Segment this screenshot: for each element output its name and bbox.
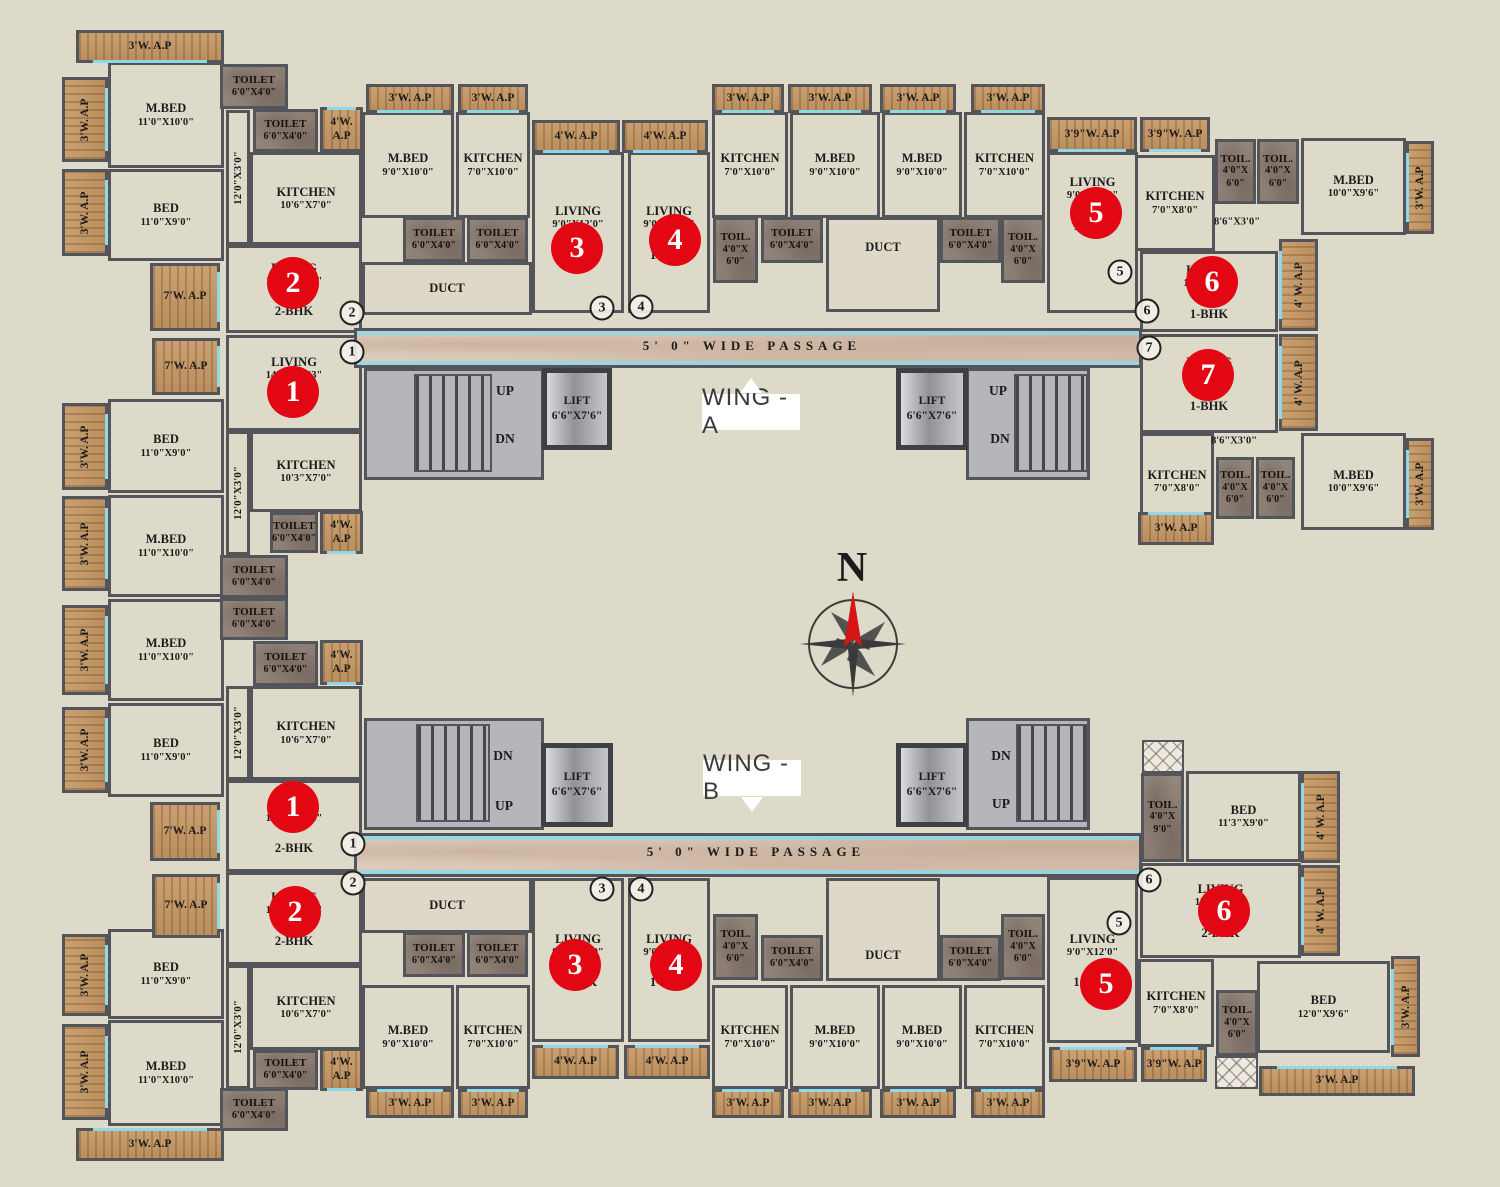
room-label: 6'6"X7'6" xyxy=(552,409,602,424)
unit-number-badge: 6 xyxy=(1198,885,1250,937)
room-mbed: M.BED9'0"X10'0" xyxy=(790,985,880,1089)
room-label: TOIL. xyxy=(1008,231,1038,244)
room-label: 4'0"X xyxy=(1265,165,1291,178)
room-label: BED xyxy=(1311,993,1337,1007)
toilet: TOILET6'0"X4'0" xyxy=(220,555,288,598)
toilet: TOILET6'0"X4'0" xyxy=(467,217,528,262)
room-label: TOILET xyxy=(273,520,315,533)
room-label: 12'0"X3'0" xyxy=(232,706,244,760)
room-kitchen: KITCHEN10'6"X7'0" xyxy=(250,686,362,780)
window-glazing xyxy=(105,180,108,245)
flat-number-circle: 6 xyxy=(1135,299,1160,324)
balcony-ap: 7'W. A.P xyxy=(152,338,220,395)
room-label: TOILET xyxy=(950,227,992,240)
window-glazing xyxy=(105,88,108,151)
room-label: 7'W. A.P xyxy=(165,360,208,374)
room-label: TOILET xyxy=(233,606,275,619)
room-kitchen: KITCHEN7'0"X10'0" xyxy=(712,112,788,218)
room-label: 3'W. A.P xyxy=(1155,522,1198,536)
room-label: 3'9"W. A.P xyxy=(1065,128,1120,142)
balcony-ap: 3'W. A.P xyxy=(458,84,528,113)
window-glazing xyxy=(1277,1066,1397,1069)
window-glazing xyxy=(1279,251,1282,320)
room-label: 3'W. A.P xyxy=(389,92,432,106)
window-glazing xyxy=(722,110,775,113)
balcony-ap: 3'W. A.P xyxy=(62,934,108,1016)
window-glazing xyxy=(1301,877,1304,945)
window-glazing xyxy=(105,508,108,579)
room-mbed: M.BED9'0"X10'0" xyxy=(362,112,454,218)
unit-number-badge: 4 xyxy=(649,214,701,266)
window-glazing xyxy=(105,718,108,782)
room-label: DUCT xyxy=(865,240,900,254)
room-label: 9'0"X10'0" xyxy=(382,166,433,179)
balcony-ap: 4'W. A.P xyxy=(532,1045,619,1079)
room-label: 3'W. A.P xyxy=(79,1051,91,1094)
wing-label: WING - B xyxy=(703,760,801,796)
room-label: 11'0"X10'0" xyxy=(138,651,194,664)
room-label: TOIL. xyxy=(720,928,750,941)
room-label: 9'0"X10'0" xyxy=(896,1038,947,1051)
room-label: LIFT xyxy=(919,770,946,785)
window-glazing xyxy=(635,1045,699,1048)
window-glazing xyxy=(1391,969,1394,1045)
room-label: A.P xyxy=(332,663,350,677)
room-label: TOILET xyxy=(413,942,455,955)
flat-number-circle: 4 xyxy=(629,877,654,902)
north-label: N xyxy=(837,544,867,592)
passage-label: 5' 0" WIDE PASSAGE xyxy=(643,338,861,354)
stair-direction-label: UP xyxy=(989,383,1007,399)
balcony-ap: 7'W. A.P xyxy=(150,802,220,861)
dimension-label: 8'6"X3'0" xyxy=(1211,436,1257,447)
balcony-ap: 3'W. A.P xyxy=(458,1089,528,1118)
room-label: M.BED xyxy=(146,1059,187,1073)
room-kitchen: KITCHEN7'0"X8'0" xyxy=(1138,959,1214,1047)
passage-label: 5' 0" WIDE PASSAGE xyxy=(647,844,865,860)
toilet: TOIL.4'0"X6'0" xyxy=(713,914,758,980)
room-label: A.P xyxy=(332,1070,350,1084)
stair-steps xyxy=(416,724,490,822)
room-label: 3'9"W. A.P xyxy=(1066,1058,1121,1072)
room-label: TOIL. xyxy=(1220,153,1250,166)
wing-label: WING - A xyxy=(702,394,800,430)
duct: DUCT xyxy=(362,262,532,315)
room-mbed: M.BED9'0"X10'0" xyxy=(882,112,962,218)
room-label: 10'6"X7'0" xyxy=(280,1008,331,1021)
room-label: 6'0"X4'0" xyxy=(232,1110,276,1123)
room-label: KITCHEN xyxy=(463,1023,522,1037)
dimension-label: 8'6"X3'0" xyxy=(1214,217,1260,228)
room-kitchen: KITCHEN7'0"X10'0" xyxy=(964,985,1045,1089)
duct: DUCT xyxy=(826,878,940,981)
flat-number-circle: 5 xyxy=(1107,911,1132,936)
room-label: 10'6"X7'0" xyxy=(280,734,331,747)
toilet: TOILET6'0"X4'0" xyxy=(270,512,318,553)
flat-number-circle: 5 xyxy=(1108,260,1133,285)
balcony-ap: 4'W.A.P xyxy=(320,107,363,152)
lift: LIFT6'6"X7'6" xyxy=(896,743,968,827)
room-label: TOILET xyxy=(265,651,307,664)
room-label: 7'0"X10'0" xyxy=(979,1038,1030,1051)
room-label: 7'0"X8'0" xyxy=(1154,482,1200,495)
room-label: BED xyxy=(153,432,179,446)
room-label: KITCHEN xyxy=(1145,189,1204,203)
room-label: TOIL. xyxy=(1263,153,1293,166)
window-glazing xyxy=(1058,149,1125,152)
balcony-ap: 3'9"W. A.P xyxy=(1141,1047,1207,1082)
room-label: 9'0"X10'0" xyxy=(809,1038,860,1051)
balcony-ap: 3'W. A.P xyxy=(62,403,108,490)
room-label: 11'0"X9'0" xyxy=(141,447,192,460)
room-label: 4'0"X xyxy=(1224,1017,1250,1030)
balcony-ap: 3'W. A.P xyxy=(62,605,108,695)
room-label: 9'0"X10'0" xyxy=(809,166,860,179)
room-label: LIVING xyxy=(555,204,601,218)
room-label: KITCHEN xyxy=(1147,468,1206,482)
balcony-ap: 4' W. A.P xyxy=(1279,334,1318,431)
room-label: BED xyxy=(1231,803,1257,817)
toilet: TOILET6'0"X4'0" xyxy=(220,598,288,640)
window-glazing xyxy=(799,1089,861,1092)
balcony-ap: 3'W. A.P xyxy=(1259,1066,1415,1096)
balcony-ap: 3'9"W. A.P xyxy=(1140,117,1210,152)
balcony-ap: 4'W.A.P xyxy=(320,640,363,685)
room-label: KITCHEN xyxy=(720,1023,779,1037)
room-label: 4'W. A.P xyxy=(646,1055,689,1069)
stair-steps xyxy=(414,374,492,472)
window-glazing xyxy=(543,150,609,153)
room-label: 4'W. xyxy=(330,519,352,533)
room-label: KITCHEN xyxy=(975,151,1034,165)
wing-pointer-icon xyxy=(740,378,762,393)
toilet: TOIL.4'0"X6'0" xyxy=(1001,217,1045,283)
room-label: 6'0" xyxy=(1014,953,1032,966)
room-label: 6'0"X4'0" xyxy=(949,958,993,971)
window-glazing xyxy=(890,1089,946,1092)
room-120x30: 12'0"X3'0" xyxy=(226,110,250,245)
flat-number-circle: 4 xyxy=(629,295,654,320)
stair-steps xyxy=(1016,724,1088,822)
room-label: 6'0" xyxy=(1266,494,1284,507)
unit-number-badge: 5 xyxy=(1070,187,1122,239)
room-label: 4'0"X xyxy=(1223,165,1249,178)
unit-type-label: 1-BHK xyxy=(1190,308,1228,321)
room-label: M.BED xyxy=(902,1023,943,1037)
balcony-ap: 4'W.A.P xyxy=(320,1048,363,1091)
window-glazing xyxy=(327,107,357,110)
room-120x30: 12'0"X3'0" xyxy=(226,965,250,1089)
room-label: TOILET xyxy=(233,74,275,87)
window-glazing xyxy=(1148,512,1204,515)
window-glazing xyxy=(467,1089,518,1092)
room-kitchen: KITCHEN10'3"X7'0" xyxy=(250,431,362,512)
toilet: TOILET6'0"X4'0" xyxy=(467,932,528,977)
window-glazing xyxy=(217,810,220,852)
room-label: 10'0"X9'6" xyxy=(1328,187,1379,200)
stair-direction-label: DN xyxy=(991,748,1011,764)
window-glazing xyxy=(217,346,220,387)
room-label: 6'0" xyxy=(726,953,744,966)
balcony-ap: 4' W. A.P xyxy=(1279,239,1318,331)
room-label: KITCHEN xyxy=(276,185,335,199)
window-glazing xyxy=(377,1089,443,1092)
room-label: 3'W. A.P xyxy=(1414,463,1426,506)
room-label: 7'0"X8'0" xyxy=(1152,204,1198,217)
window-glazing xyxy=(633,150,697,153)
flat-number-circle: 1 xyxy=(340,340,365,365)
toilet: TOILET6'0"X4'0" xyxy=(940,217,1001,263)
room-label: M.BED xyxy=(1333,468,1374,482)
room-label: LIFT xyxy=(564,770,591,785)
toilet: TOIL.4'0"X6'0" xyxy=(1216,457,1254,519)
room-label: 7'W. A.P xyxy=(164,825,207,839)
window-glazing xyxy=(1150,1047,1198,1050)
balcony-ap: 4'W. A.P xyxy=(622,120,708,153)
room-label: 6'0" xyxy=(1226,178,1244,191)
room-label: 4'0"X xyxy=(1010,244,1036,257)
wing-pointer-icon xyxy=(741,797,763,812)
room-label: 6'0" xyxy=(1226,494,1244,507)
room-label: 4'0"X xyxy=(723,941,749,954)
balcony-ap: 3'W. A.P xyxy=(76,30,224,63)
room-mbed: M.BED10'0"X9'6" xyxy=(1301,433,1406,530)
window-glazing xyxy=(377,110,443,113)
room-label: LIFT xyxy=(919,394,946,409)
toilet: TOIL.4'0"X9'0" xyxy=(1141,773,1184,862)
room-label: 9'0"X10'0" xyxy=(382,1038,433,1051)
room-label: 4'W. xyxy=(330,649,352,663)
hatched-opening xyxy=(1215,1056,1258,1089)
stair-direction-label: UP xyxy=(496,383,514,399)
room-label: 6'0"X4'0" xyxy=(264,131,308,144)
room-label: 4'W. xyxy=(330,116,352,130)
unit-type-label: 2-BHK xyxy=(275,842,313,855)
window-glazing xyxy=(543,1045,608,1048)
room-label: 7'0"X10'0" xyxy=(724,166,775,179)
room-label: 6'0"X4'0" xyxy=(770,958,814,971)
room-label: 6'0"X4'0" xyxy=(476,955,520,968)
toilet: TOIL.4'0"X6'0" xyxy=(1001,914,1045,980)
room-bed: BED11'3"X9'0" xyxy=(1186,771,1301,862)
room-label: 6'0" xyxy=(1269,178,1287,191)
balcony-ap: 3'W. A.P xyxy=(1391,956,1420,1057)
window-glazing xyxy=(799,110,861,113)
room-label: 4' W. A.P xyxy=(1315,888,1327,933)
room-kitchen: KITCHEN10'6"X7'0" xyxy=(250,152,362,245)
window-glazing xyxy=(327,682,357,685)
toilet: TOIL.4'0"X6'0" xyxy=(1257,139,1299,204)
room-mbed: M.BED11'0"X10'0" xyxy=(108,495,224,597)
balcony-ap: 3'W. A.P xyxy=(788,84,872,113)
window-glazing xyxy=(1406,153,1409,223)
room-label: 4'W. A.P xyxy=(644,130,687,144)
room-label: 3'9"W. A.P xyxy=(1148,128,1203,142)
room-label: M.BED xyxy=(1333,173,1374,187)
room-label: 10'6"X7'0" xyxy=(280,199,331,212)
flat-number-circle: 1 xyxy=(341,832,366,857)
balcony-ap: 4'W. A.P xyxy=(624,1045,710,1079)
room-label: 3'W. A.P xyxy=(1316,1074,1359,1088)
room-label: M.BED xyxy=(815,1023,856,1037)
room-label: 3'W. A.P xyxy=(79,954,91,997)
lift: LIFT6'6"X7'6" xyxy=(896,368,968,450)
room-label: 12'0"X3'0" xyxy=(232,151,244,205)
room-label: 3'W. A.P xyxy=(79,729,91,772)
room-label: TOILET xyxy=(233,564,275,577)
window-glazing xyxy=(105,945,108,1006)
room-kitchen: KITCHEN7'0"X10'0" xyxy=(456,112,530,218)
room-bed: BED11'0"X9'0" xyxy=(108,399,224,493)
room-label: 3'W. A.P xyxy=(987,92,1030,106)
room-label: 3'W. A.P xyxy=(389,1097,432,1111)
room-kitchen: KITCHEN10'6"X7'0" xyxy=(250,965,362,1050)
room-label: DUCT xyxy=(429,898,464,912)
room-120x30: 12'0"X3'0" xyxy=(226,431,250,555)
room-label: KITCHEN xyxy=(276,994,335,1008)
stair-direction-label: UP xyxy=(495,798,513,814)
unit-number-badge: 3 xyxy=(551,222,603,274)
room-label: 9'0"X12'0" xyxy=(1067,946,1118,959)
room-label: A.P xyxy=(332,130,350,144)
room-label: BED xyxy=(153,736,179,750)
room-mbed: M.BED11'0"X10'0" xyxy=(108,62,224,168)
balcony-ap: 4' W. A.P xyxy=(1301,771,1340,863)
room-label: KITCHEN xyxy=(463,151,522,165)
balcony-ap: 3'W. A.P xyxy=(880,1089,956,1118)
room-label: 7'0"X8'0" xyxy=(1153,1004,1199,1017)
room-label: 3'W. A.P xyxy=(809,92,852,106)
room-120x30: 12'0"X3'0" xyxy=(226,686,250,780)
room-label: 3'W. A.P xyxy=(79,191,91,234)
room-label: 12'0"X3'0" xyxy=(232,1000,244,1054)
toilet: TOILET6'0"X4'0" xyxy=(220,64,288,109)
room-label: 4'0"X xyxy=(1263,482,1289,495)
room-label: 6'0" xyxy=(1014,256,1032,269)
balcony-ap: 4'W. A.P xyxy=(532,120,620,153)
window-glazing xyxy=(467,110,518,113)
balcony-ap: 3'W. A.P xyxy=(880,84,956,113)
room-bed: BED11'0"X9'0" xyxy=(108,703,224,797)
room-label: 3'9"W. A.P xyxy=(1147,1058,1202,1072)
room-mbed: M.BED11'0"X10'0" xyxy=(108,1020,224,1126)
window-glazing xyxy=(327,551,357,554)
room-label: 3'W. A.P xyxy=(79,425,91,468)
toilet: TOIL.4'0"X6'0" xyxy=(713,217,758,283)
room-label: 7'0"X10'0" xyxy=(467,166,518,179)
room-label: 12'0"X3'0" xyxy=(232,466,244,520)
room-label: KITCHEN xyxy=(276,719,335,733)
room-label: TOIL. xyxy=(1008,928,1038,941)
room-label: 4'W. A.P xyxy=(555,130,598,144)
lift: LIFT6'6"X7'6" xyxy=(542,368,612,450)
window-glazing xyxy=(1279,346,1282,419)
room-label: TOILET xyxy=(771,945,813,958)
window-glazing xyxy=(1149,149,1200,152)
flat-number-circle: 7 xyxy=(1137,336,1162,361)
balcony-ap: 3'W. A.P xyxy=(1138,512,1214,545)
room-label: LIVING xyxy=(1070,932,1116,946)
room-label: 3'W. A.P xyxy=(129,1138,172,1152)
room-label: 6'0" xyxy=(726,256,744,269)
room-label: KITCHEN xyxy=(276,458,335,472)
window-glazing xyxy=(1406,450,1409,519)
unit-number-badge: 7 xyxy=(1182,349,1234,401)
balcony-ap: 3'W. A.P xyxy=(788,1089,872,1118)
room-label: 4' W. A.P xyxy=(1293,262,1305,307)
room-label: 6'0"X4'0" xyxy=(476,240,520,253)
room-label: DUCT xyxy=(429,281,464,295)
room-label: 4'0"X xyxy=(1150,811,1176,824)
room-label: KITCHEN xyxy=(1146,989,1205,1003)
balcony-ap: 3'9"W. A.P xyxy=(1049,1047,1137,1082)
room-mbed: M.BED9'0"X10'0" xyxy=(362,985,454,1089)
room-label: 3'W. A.P xyxy=(79,98,91,141)
window-glazing xyxy=(981,1089,1035,1092)
window-glazing xyxy=(1060,1047,1126,1050)
balcony-ap: 3'9"W. A.P xyxy=(1047,117,1137,152)
room-label: 3'W. A.P xyxy=(987,1097,1030,1111)
room-label: TOILET xyxy=(265,118,307,131)
room-label: BED xyxy=(153,201,179,215)
room-label: 6'0"X4'0" xyxy=(232,87,276,100)
stair-direction-label: DN xyxy=(495,431,515,447)
room-label: 11'0"X9'0" xyxy=(141,216,192,229)
room-label: TOILET xyxy=(477,942,519,955)
room-label: 7'W. A.P xyxy=(165,899,208,913)
room-label: 11'0"X10'0" xyxy=(138,116,194,129)
room-label: 11'0"X10'0" xyxy=(138,547,194,560)
room-label: 7'0"X10'0" xyxy=(724,1038,775,1051)
balcony-ap: 3'W. A.P xyxy=(62,77,108,162)
stair-direction-label: DN xyxy=(990,431,1010,447)
room-label: 6'6"X7'6" xyxy=(552,785,602,800)
balcony-ap: 3'W. A.P xyxy=(712,84,784,113)
room-label: KITCHEN xyxy=(975,1023,1034,1037)
room-label: 3'W. A.P xyxy=(897,1097,940,1111)
balcony-ap: 3'W. A.P xyxy=(366,1089,454,1118)
room-label: TOIL. xyxy=(720,231,750,244)
unit-number-badge: 4 xyxy=(650,939,702,991)
room-label: 4'0"X xyxy=(1010,941,1036,954)
room-kitchen: KITCHEN7'0"X10'0" xyxy=(712,985,788,1089)
toilet: TOIL.4'0"X6'0" xyxy=(1215,139,1256,204)
room-label: 3'W. A.P xyxy=(897,92,940,106)
room-kitchen: KITCHEN7'0"X8'0" xyxy=(1135,155,1215,251)
room-label: LIFT xyxy=(564,394,591,409)
toilet: TOILET6'0"X4'0" xyxy=(940,935,1001,981)
balcony-ap: 3'W. A.P xyxy=(712,1089,784,1118)
window-glazing xyxy=(93,1128,207,1131)
room-label: 6'0"X4'0" xyxy=(232,619,276,632)
window-glazing xyxy=(217,272,220,322)
room-label: TOILET xyxy=(950,945,992,958)
room-label: 6'6"X7'6" xyxy=(907,785,957,800)
room-label: 6'0"X4'0" xyxy=(770,240,814,253)
window-glazing xyxy=(105,414,108,479)
room-label: 11'3"X9'0" xyxy=(1218,817,1269,830)
balcony-ap: 7'W. A.P xyxy=(152,874,220,938)
balcony-ap: 3'W. A.P xyxy=(62,496,108,591)
flat-number-circle: 3 xyxy=(590,296,615,321)
room-label: 6'0" xyxy=(1228,1029,1246,1042)
unit-number-badge: 2 xyxy=(267,257,319,309)
flat-number-circle: 3 xyxy=(590,877,615,902)
toilet: TOIL.4'0"X6'0" xyxy=(1216,990,1258,1056)
room-label: M.BED xyxy=(902,151,943,165)
room-label: M.BED xyxy=(815,151,856,165)
room-kitchen: KITCHEN7'0"X10'0" xyxy=(456,985,530,1089)
